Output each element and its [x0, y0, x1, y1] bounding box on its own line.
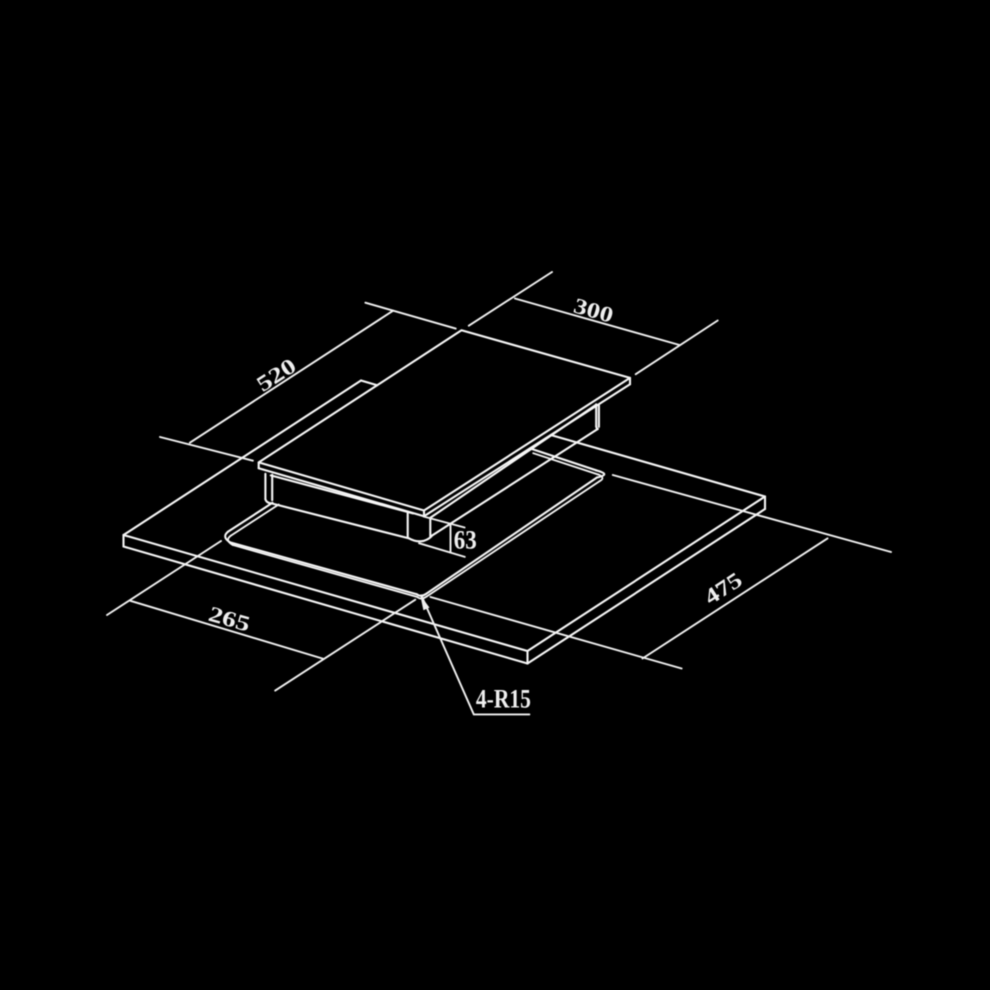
- svg-text:63: 63: [454, 526, 477, 555]
- svg-text:4-R15: 4-R15: [476, 685, 531, 714]
